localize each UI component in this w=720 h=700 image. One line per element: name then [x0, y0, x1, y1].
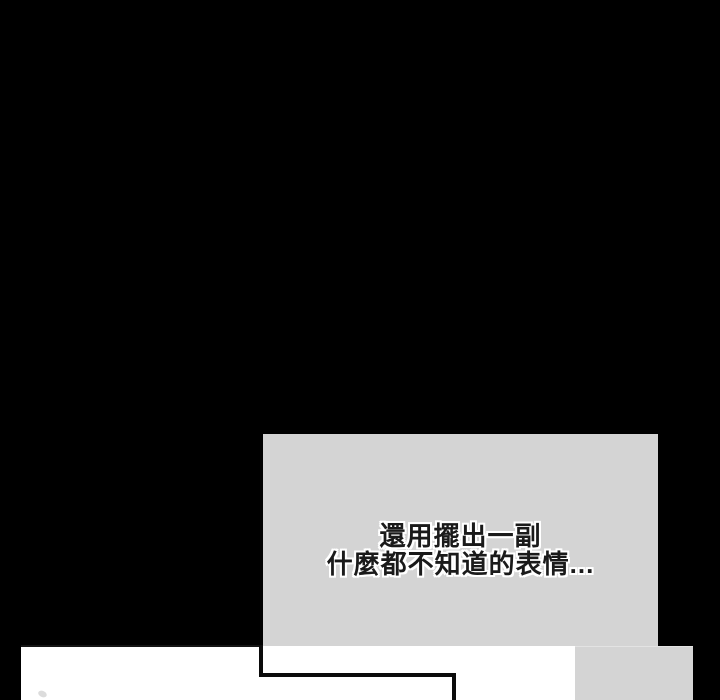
dialog-line-1: 還用擺出一副: [263, 522, 658, 550]
comic-frame-left: [21, 645, 262, 700]
panel-border-horizontal: [262, 673, 456, 677]
next-dialog-panel-fragment: [572, 646, 693, 700]
dialog-panel: 還用擺出一副 什麼都不知道的表情...: [263, 434, 658, 646]
panel-border-vertical-right: [452, 675, 456, 700]
dialog-text: 還用擺出一副 什麼都不知道的表情...: [263, 522, 658, 578]
dialog-line-2: 什麼都不知道的表情...: [263, 550, 658, 578]
comic-page: 還用擺出一副 什麼都不知道的表情...: [0, 0, 720, 700]
